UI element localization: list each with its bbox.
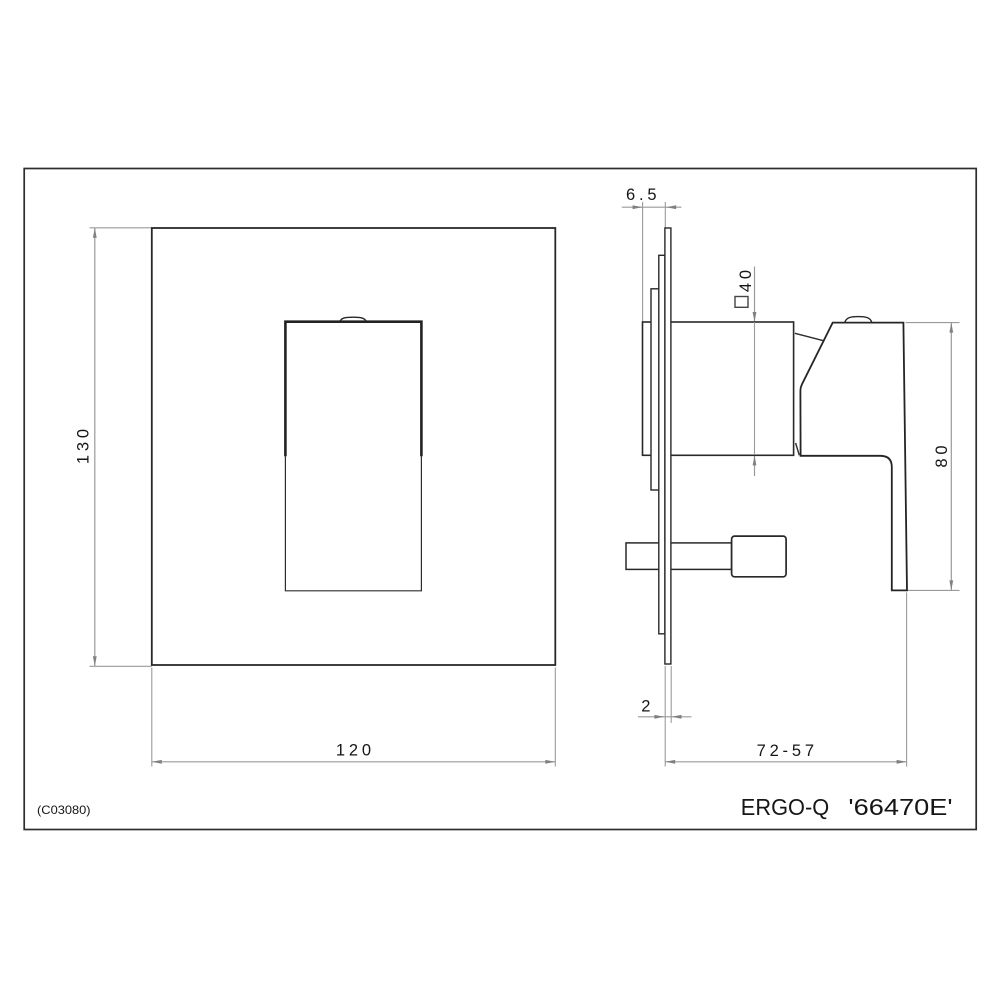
svg-text:72-57: 72-57 <box>757 742 818 760</box>
svg-text:120: 120 <box>336 742 375 760</box>
svg-text:ERGO-Q: ERGO-Q <box>741 794 829 820</box>
svg-text:6.5: 6.5 <box>626 186 660 204</box>
svg-text:80: 80 <box>933 442 951 468</box>
svg-text:40: 40 <box>737 266 755 292</box>
svg-text:130: 130 <box>75 425 93 464</box>
svg-text:(C03080): (C03080) <box>37 804 91 817</box>
svg-text:2: 2 <box>641 697 654 715</box>
svg-text:'66470E': '66470E' <box>848 794 952 820</box>
